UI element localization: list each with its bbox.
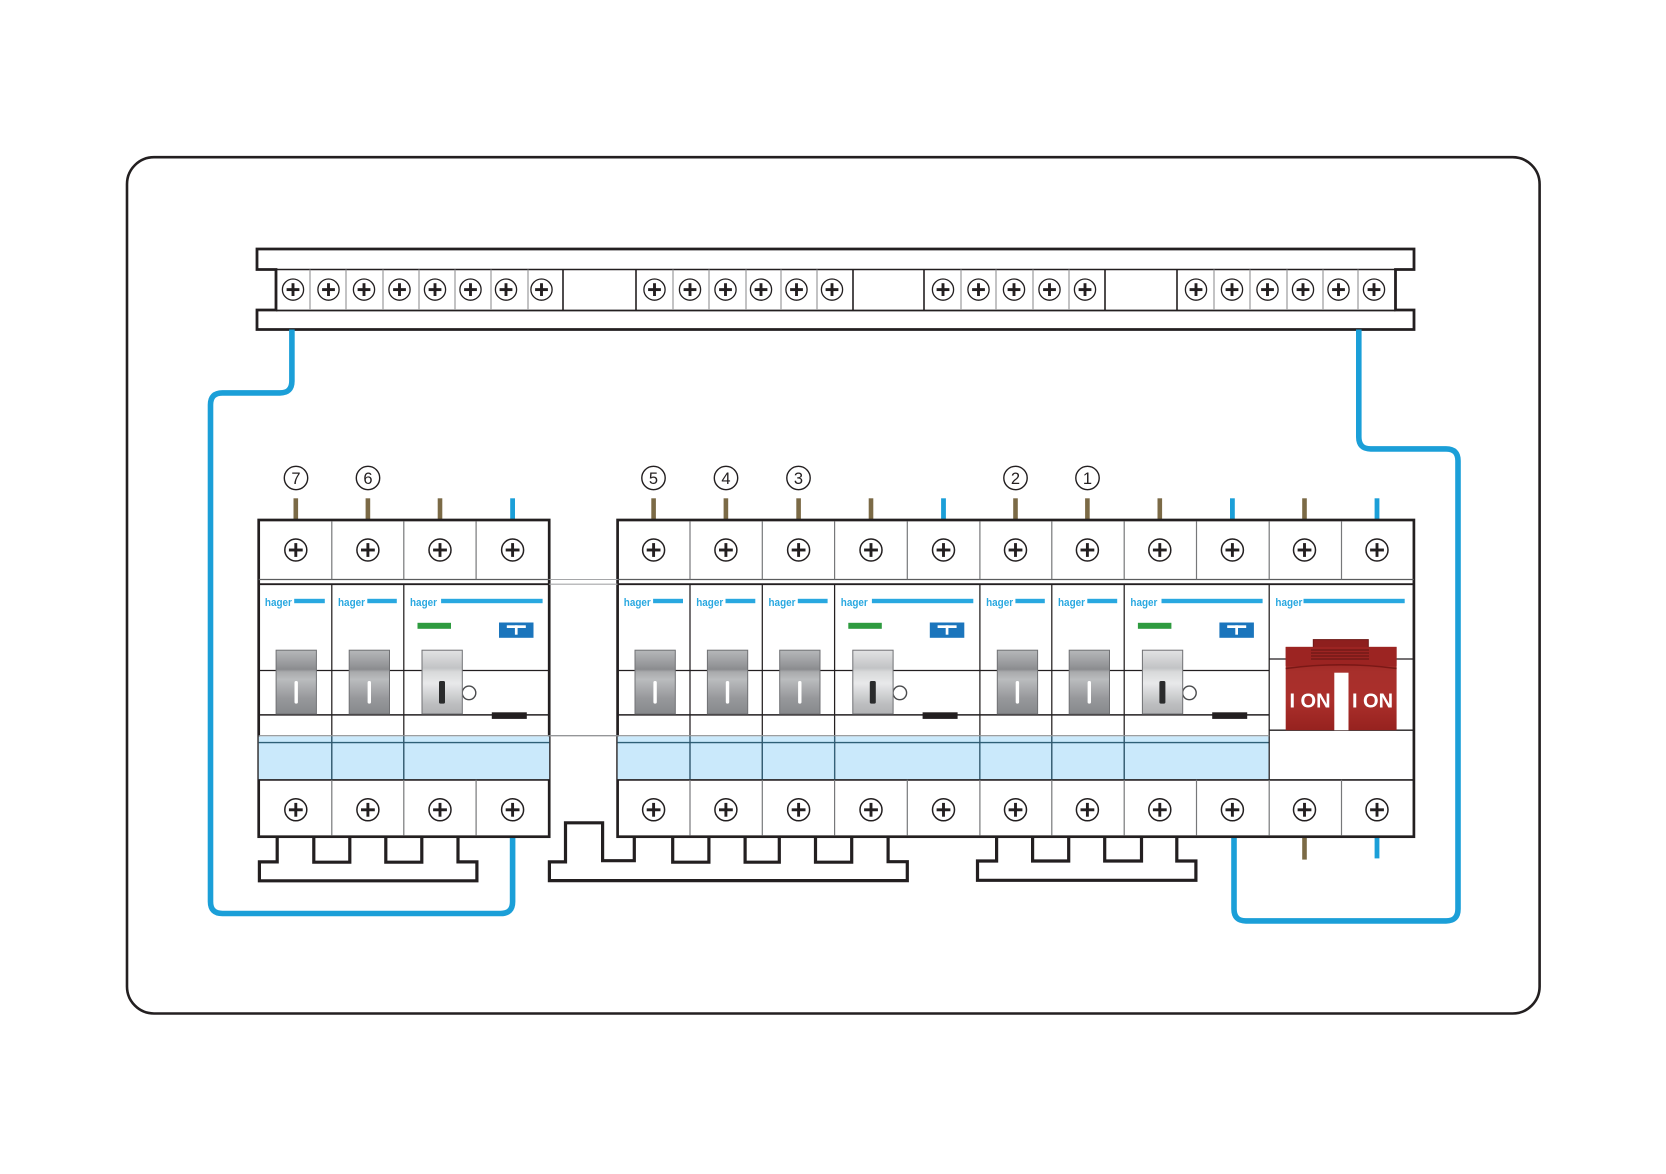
svg-text:hager: hager [410, 597, 438, 609]
svg-text:hager: hager [769, 597, 797, 609]
svg-text:hager: hager [696, 597, 724, 609]
svg-text:4: 4 [721, 470, 730, 488]
svg-text:5: 5 [649, 470, 658, 488]
svg-text:7: 7 [291, 470, 300, 488]
svg-text:hager: hager [841, 597, 869, 609]
svg-text:hager: hager [338, 597, 366, 609]
svg-text:hager: hager [265, 597, 293, 609]
svg-text:I ON: I ON [1289, 691, 1330, 713]
svg-text:hager: hager [986, 597, 1014, 609]
svg-text:3: 3 [794, 470, 803, 488]
svg-text:2: 2 [1011, 470, 1020, 488]
svg-text:hager: hager [1058, 597, 1086, 609]
svg-text:1: 1 [1083, 470, 1092, 488]
svg-text:6: 6 [363, 470, 372, 488]
svg-text:hager: hager [624, 597, 652, 609]
svg-text:hager: hager [1130, 597, 1158, 609]
svg-text:hager: hager [1275, 597, 1303, 609]
svg-text:I ON: I ON [1352, 691, 1393, 713]
